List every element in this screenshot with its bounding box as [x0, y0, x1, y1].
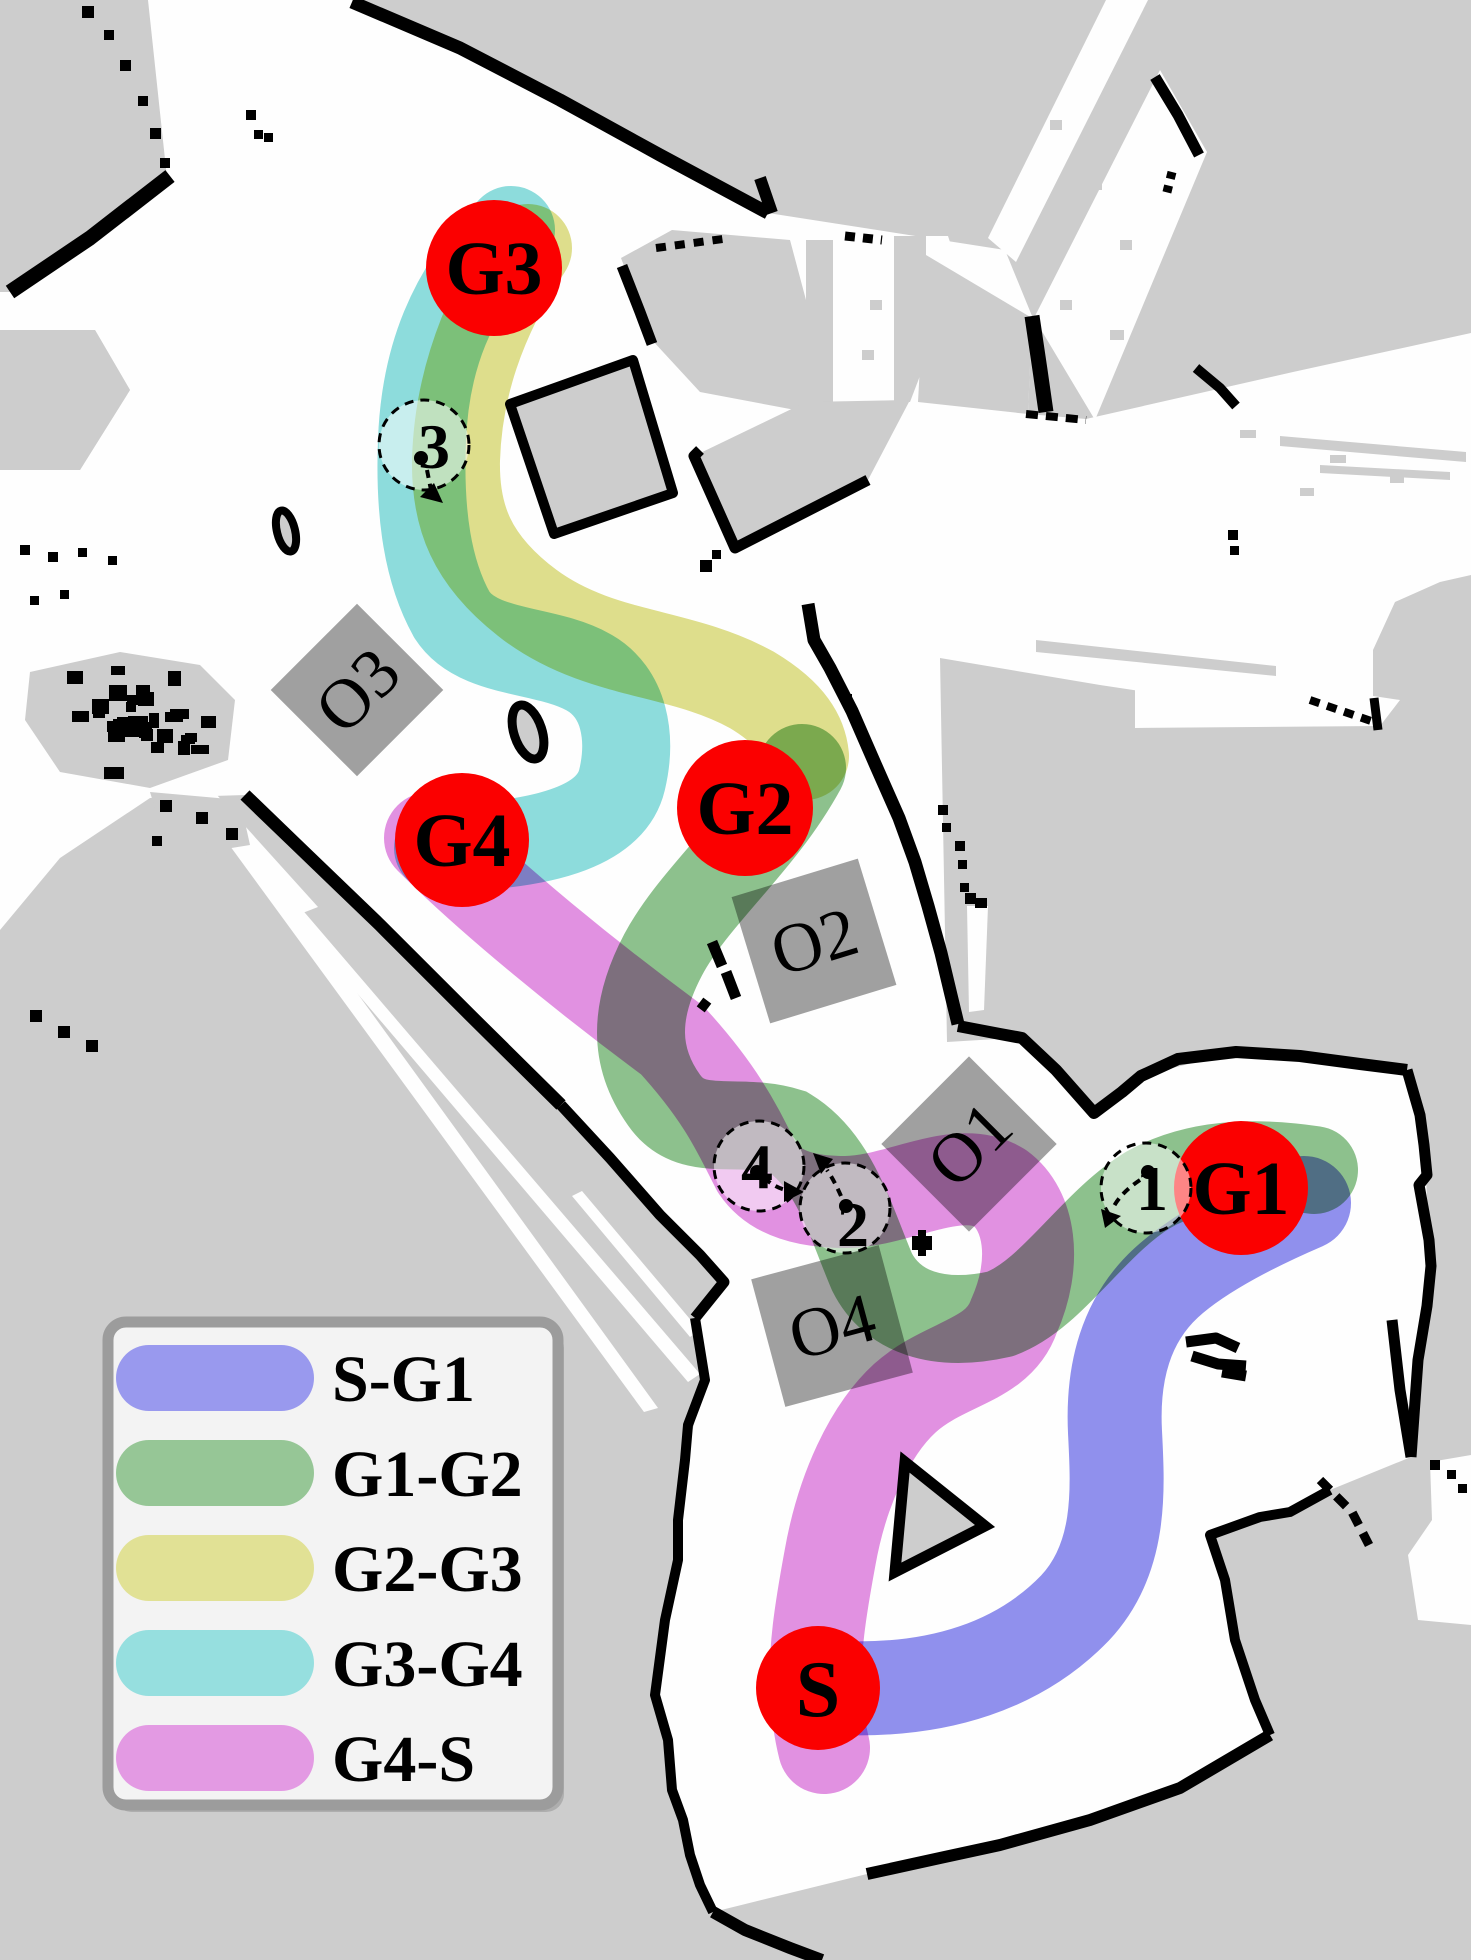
svg-text:2: 2 — [837, 1189, 869, 1260]
svg-text:1: 1 — [1136, 1153, 1168, 1224]
svg-text:G3: G3 — [445, 227, 542, 311]
svg-text:G1-G2: G1-G2 — [332, 1438, 523, 1511]
svg-text:G2: G2 — [696, 767, 793, 851]
svg-text:G1: G1 — [1192, 1147, 1289, 1231]
svg-text:G2-G3: G2-G3 — [332, 1533, 523, 1606]
svg-text:G3-G4: G3-G4 — [332, 1628, 523, 1701]
svg-text:G4-S: G4-S — [332, 1723, 475, 1796]
svg-text:S: S — [796, 1646, 841, 1734]
svg-text:S-G1: S-G1 — [332, 1343, 475, 1416]
svg-text:G4: G4 — [413, 799, 510, 883]
svg-text:3: 3 — [418, 411, 450, 482]
